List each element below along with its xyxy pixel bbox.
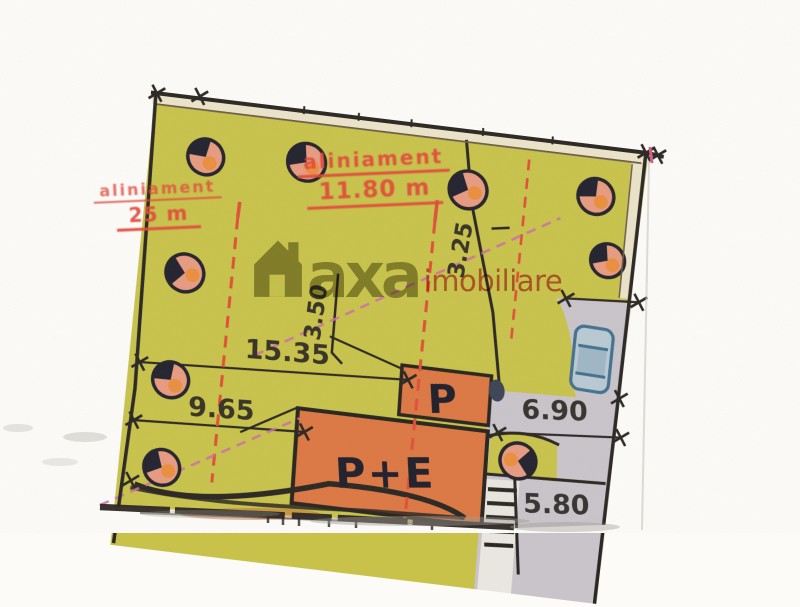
house-icon [249, 235, 307, 299]
building-pe-label: P+E [334, 449, 437, 498]
alignment-stamp-left-word: aliniament [93, 177, 222, 204]
dimension-back: 5.80 [523, 488, 590, 521]
watermark-brand: axa [307, 254, 419, 299]
dimension-access: 6.90 [521, 394, 588, 427]
alignment-line-left [238, 202, 240, 218]
alignment-stamp-top: aliniament 11.80 m [297, 145, 451, 211]
alignment-stamp-top-word: aliniament [297, 145, 450, 179]
dimension-side: 9.65 [188, 392, 255, 428]
alignment-stamp-top-value: 11.80 m [306, 174, 443, 210]
watermark: axa imobiliare [249, 231, 562, 299]
watermark-suffix: imobiliare [424, 267, 563, 296]
scanned-cadastral-site-plan: 15.35 9.65 6.90 5.80 3.50 3.25 P P+E axa [0, 0, 800, 533]
alignment-stamp-left: aliniament 25 m [91, 177, 225, 233]
tree-icon [142, 449, 182, 487]
building-p-label: P [426, 377, 458, 423]
car-icon [570, 325, 614, 394]
alignment-stamp-left-value: 25 m [116, 202, 201, 233]
